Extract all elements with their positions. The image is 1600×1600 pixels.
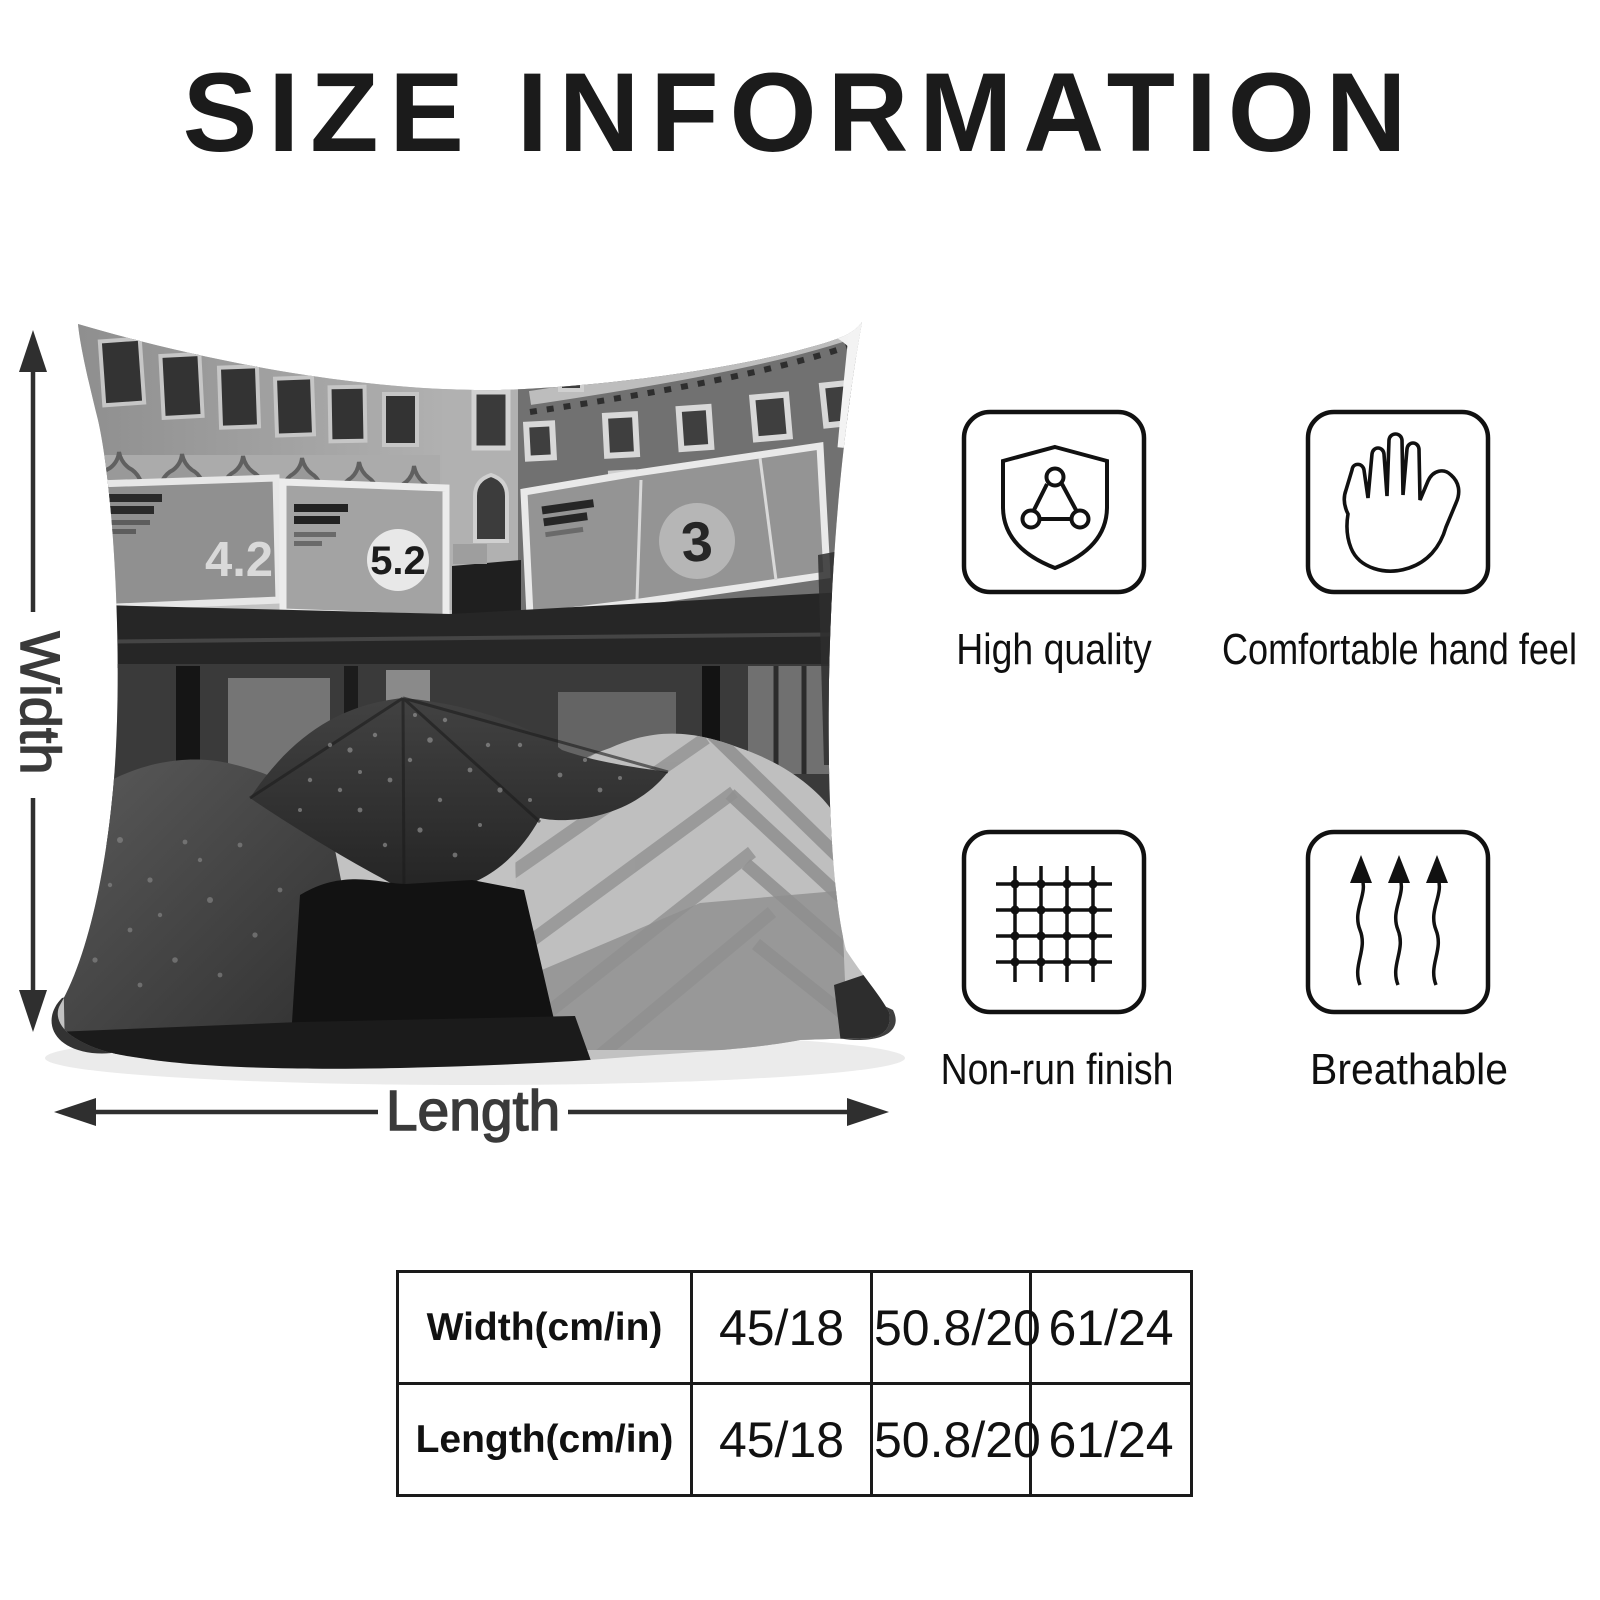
- svg-text:5.2: 5.2: [370, 539, 426, 583]
- svg-text:4.2: 4.2: [205, 533, 273, 587]
- svg-text:Length: Length: [386, 1079, 560, 1143]
- svg-text:3: 3: [679, 509, 714, 574]
- svg-text:Width: Width: [9, 631, 72, 774]
